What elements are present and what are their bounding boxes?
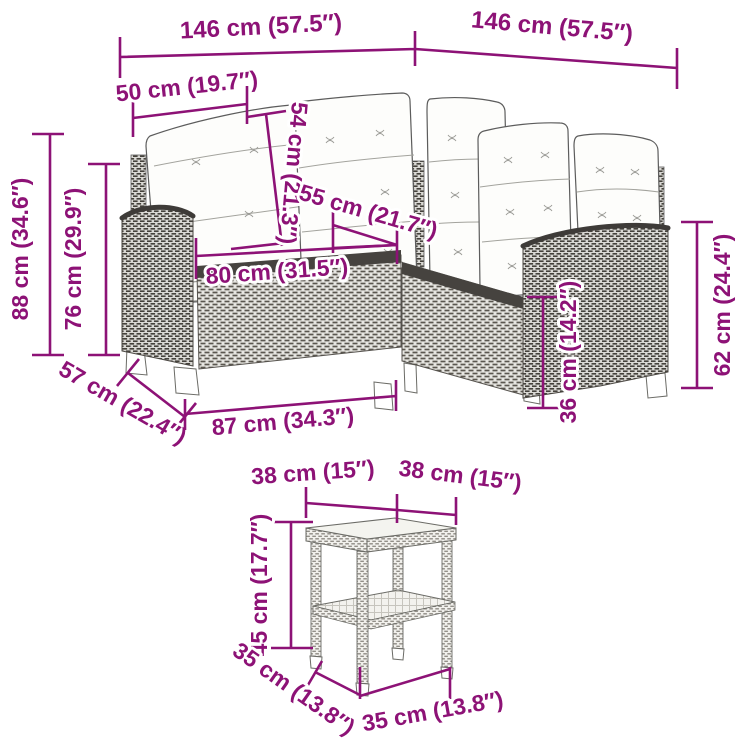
dimension-label: 62 cm (24.4″)	[709, 234, 735, 377]
dimension-label: 38 cm (15″)	[250, 455, 375, 490]
dimension-label: 57 cm (22.4″)	[55, 355, 192, 449]
dimension-87: 87 cm (34.3″)	[185, 380, 396, 440]
dimension-35-width: 35 cm (13.8″)	[360, 667, 505, 736]
dimension-label: 45 cm (17.7″)	[246, 514, 272, 657]
sofa-foot	[646, 373, 667, 398]
dimension-label: 38 cm (15″)	[397, 455, 523, 496]
dimension-label: 146 cm (57.5″)	[179, 9, 342, 44]
sofa-foot	[404, 363, 417, 393]
dimension-label: 35 cm (13.8″)	[360, 686, 505, 736]
table-foot	[392, 648, 404, 660]
dimension-label: 35 cm (13.8″)	[228, 637, 360, 740]
dimension-146-right: 146 cm (57.5″)	[415, 6, 677, 89]
dimension-62: 62 cm (24.4″)	[681, 222, 735, 388]
dimension-label: 36 cm (14.2″)	[555, 281, 581, 424]
side-table-line-drawing	[306, 518, 456, 696]
diagram-svg: 146 cm (57.5″) 146 cm (57.5″) 50 cm (19.…	[0, 0, 750, 750]
product-dimension-diagram: 146 cm (57.5″) 146 cm (57.5″) 50 cm (19.…	[0, 0, 750, 750]
dimension-label: 87 cm (34.3″)	[211, 402, 355, 440]
sofa-line-drawing	[122, 93, 668, 410]
dimension-label: 146 cm (57.5″)	[470, 6, 634, 47]
dimension-76: 76 cm (29.9″)	[60, 164, 120, 355]
sofa-foot	[174, 367, 199, 395]
dimension-38-left: 38 cm (15″)	[250, 455, 397, 523]
dimension-label: 76 cm (29.9″)	[60, 188, 86, 331]
dimension-label: 88 cm (34.6″)	[7, 178, 33, 321]
dimension-label: 50 cm (19.7″)	[114, 66, 259, 107]
dimension-45: 45 cm (17.7″)	[246, 514, 313, 657]
dimension-146-left: 146 cm (57.5″)	[120, 9, 415, 78]
armrest-left	[122, 207, 193, 366]
table-leg-front	[357, 551, 368, 684]
dimension-88: 88 cm (34.6″)	[7, 134, 64, 355]
armrest-right	[523, 225, 668, 398]
dimension-35-depth: 35 cm (13.8″)	[228, 637, 360, 740]
table-leg-left	[311, 540, 321, 657]
sofa-back-post-left	[131, 155, 146, 215]
dimension-38-right: 38 cm (15″)	[397, 455, 523, 525]
